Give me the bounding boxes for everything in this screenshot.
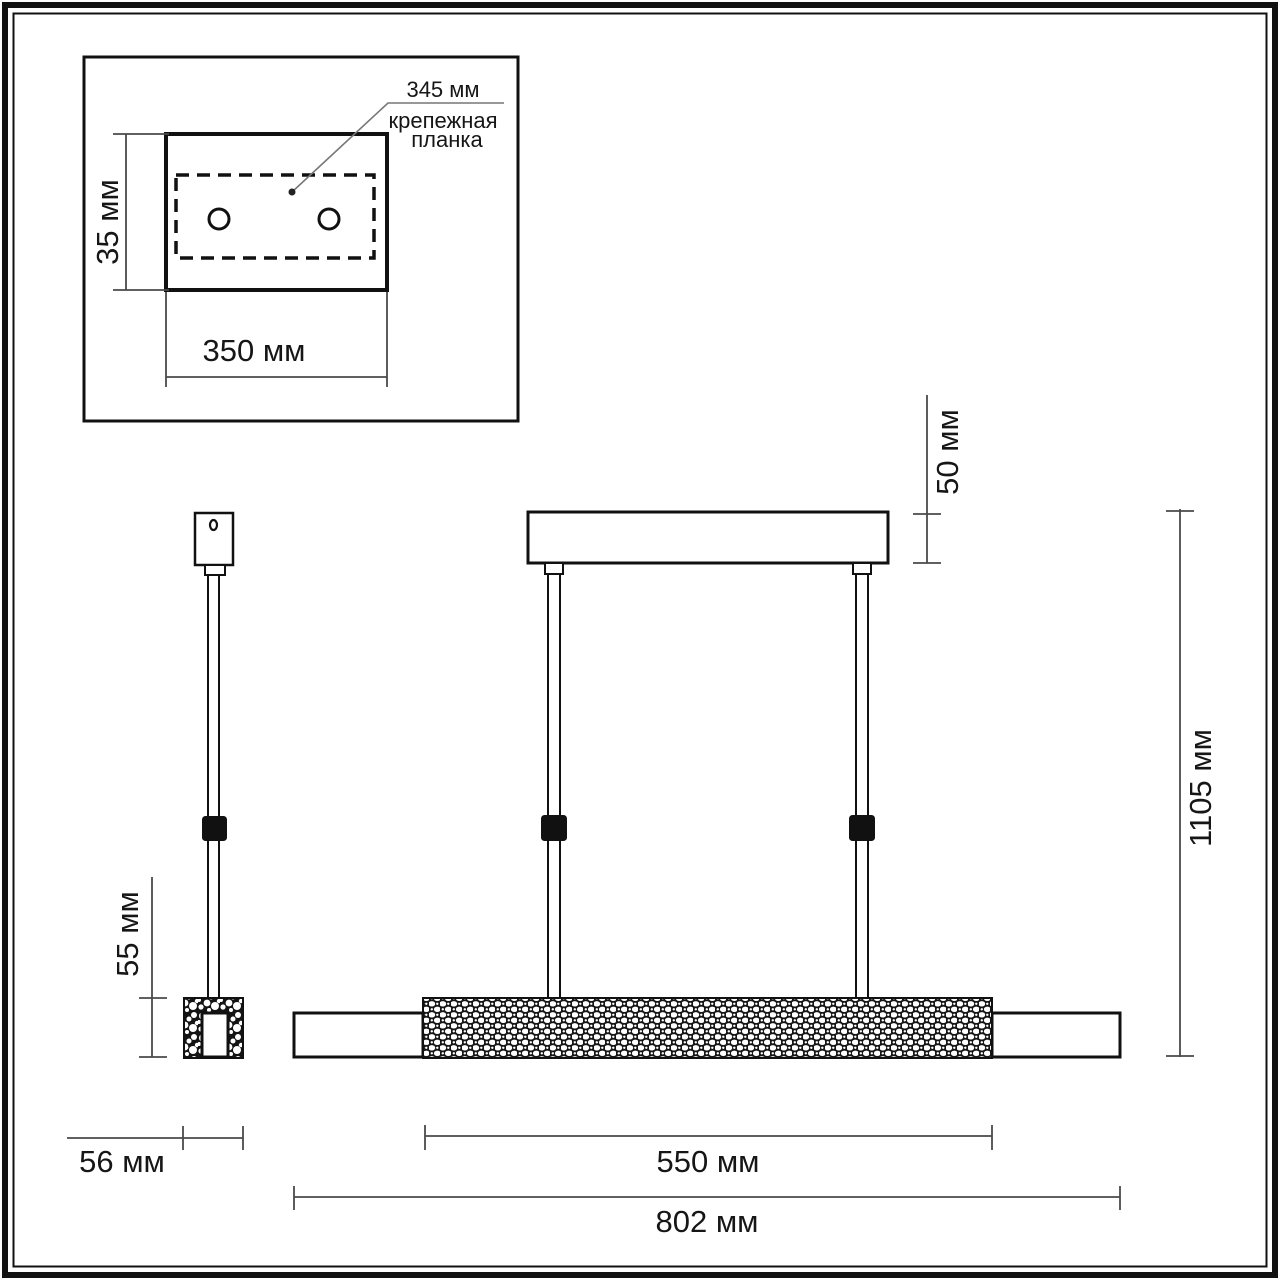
screw-hole-right	[319, 209, 339, 229]
dimension-plate-width: 350 мм	[166, 292, 387, 387]
screw-hole-left	[209, 209, 229, 229]
dimension-overall-length: 802 мм	[294, 1186, 1120, 1239]
dimension-end-cap-height: 55 мм	[110, 877, 167, 1057]
fixture-side-view: 55 мм 56 мм	[67, 513, 243, 1179]
suspension-rod-left	[548, 574, 560, 998]
rod-neck-left	[545, 563, 563, 574]
light-bar-end-left	[294, 1013, 423, 1057]
dimension-crystal-section-length: 550 мм	[425, 1125, 992, 1179]
dimension-drawing-page: 345 мм крепежная планка 35 мм 350 мм 55	[0, 0, 1280, 1280]
light-bar-end-right	[992, 1013, 1120, 1057]
dimension-overall-height: 1105 мм	[1166, 509, 1218, 1057]
rod-adjuster-block-left	[541, 815, 567, 841]
ceiling-canopy	[528, 512, 888, 563]
cable-hole-icon	[210, 520, 217, 530]
suspension-rod-right	[856, 574, 868, 998]
pendant-lamp-technical-drawing: 345 мм крепежная планка 35 мм 350 мм 55	[0, 0, 1280, 1280]
light-bar-crystal-section	[423, 998, 992, 1058]
mounting-plate-inset: 345 мм крепежная планка 35 мм 350 мм	[84, 57, 518, 421]
end-cap-width-label: 56 мм	[79, 1144, 165, 1179]
plate-width-label: 350 мм	[203, 333, 306, 368]
dimension-canopy-height: 50 мм	[913, 395, 965, 563]
leader-caption-line2: планка	[411, 127, 483, 152]
rod-neck-side	[205, 565, 225, 575]
crystal-section-length-label: 550 мм	[657, 1144, 760, 1179]
leader-dot	[289, 189, 296, 196]
overall-length-label: 802 мм	[656, 1204, 759, 1239]
rod-adjuster-block-right	[849, 815, 875, 841]
rod-adjuster-block-side	[202, 816, 227, 841]
dimension-end-cap-width: 56 мм	[67, 1126, 243, 1179]
fixture-front-view: 50 мм 1105 мм 550 мм 802 мм	[294, 395, 1218, 1239]
end-cap-slot	[202, 1013, 228, 1057]
suspension-rod-side	[208, 575, 219, 998]
rod-neck-right	[853, 563, 871, 574]
ceiling-plate-outline	[166, 134, 387, 290]
overall-height-label: 1105 мм	[1183, 729, 1218, 847]
plate-height-label: 35 мм	[90, 179, 125, 265]
plate-offset-label: 345 мм	[406, 77, 479, 102]
canopy-height-label: 50 мм	[930, 409, 965, 495]
dimension-plate-height: 35 мм	[90, 134, 169, 290]
end-cap-height-label: 55 мм	[110, 891, 145, 977]
